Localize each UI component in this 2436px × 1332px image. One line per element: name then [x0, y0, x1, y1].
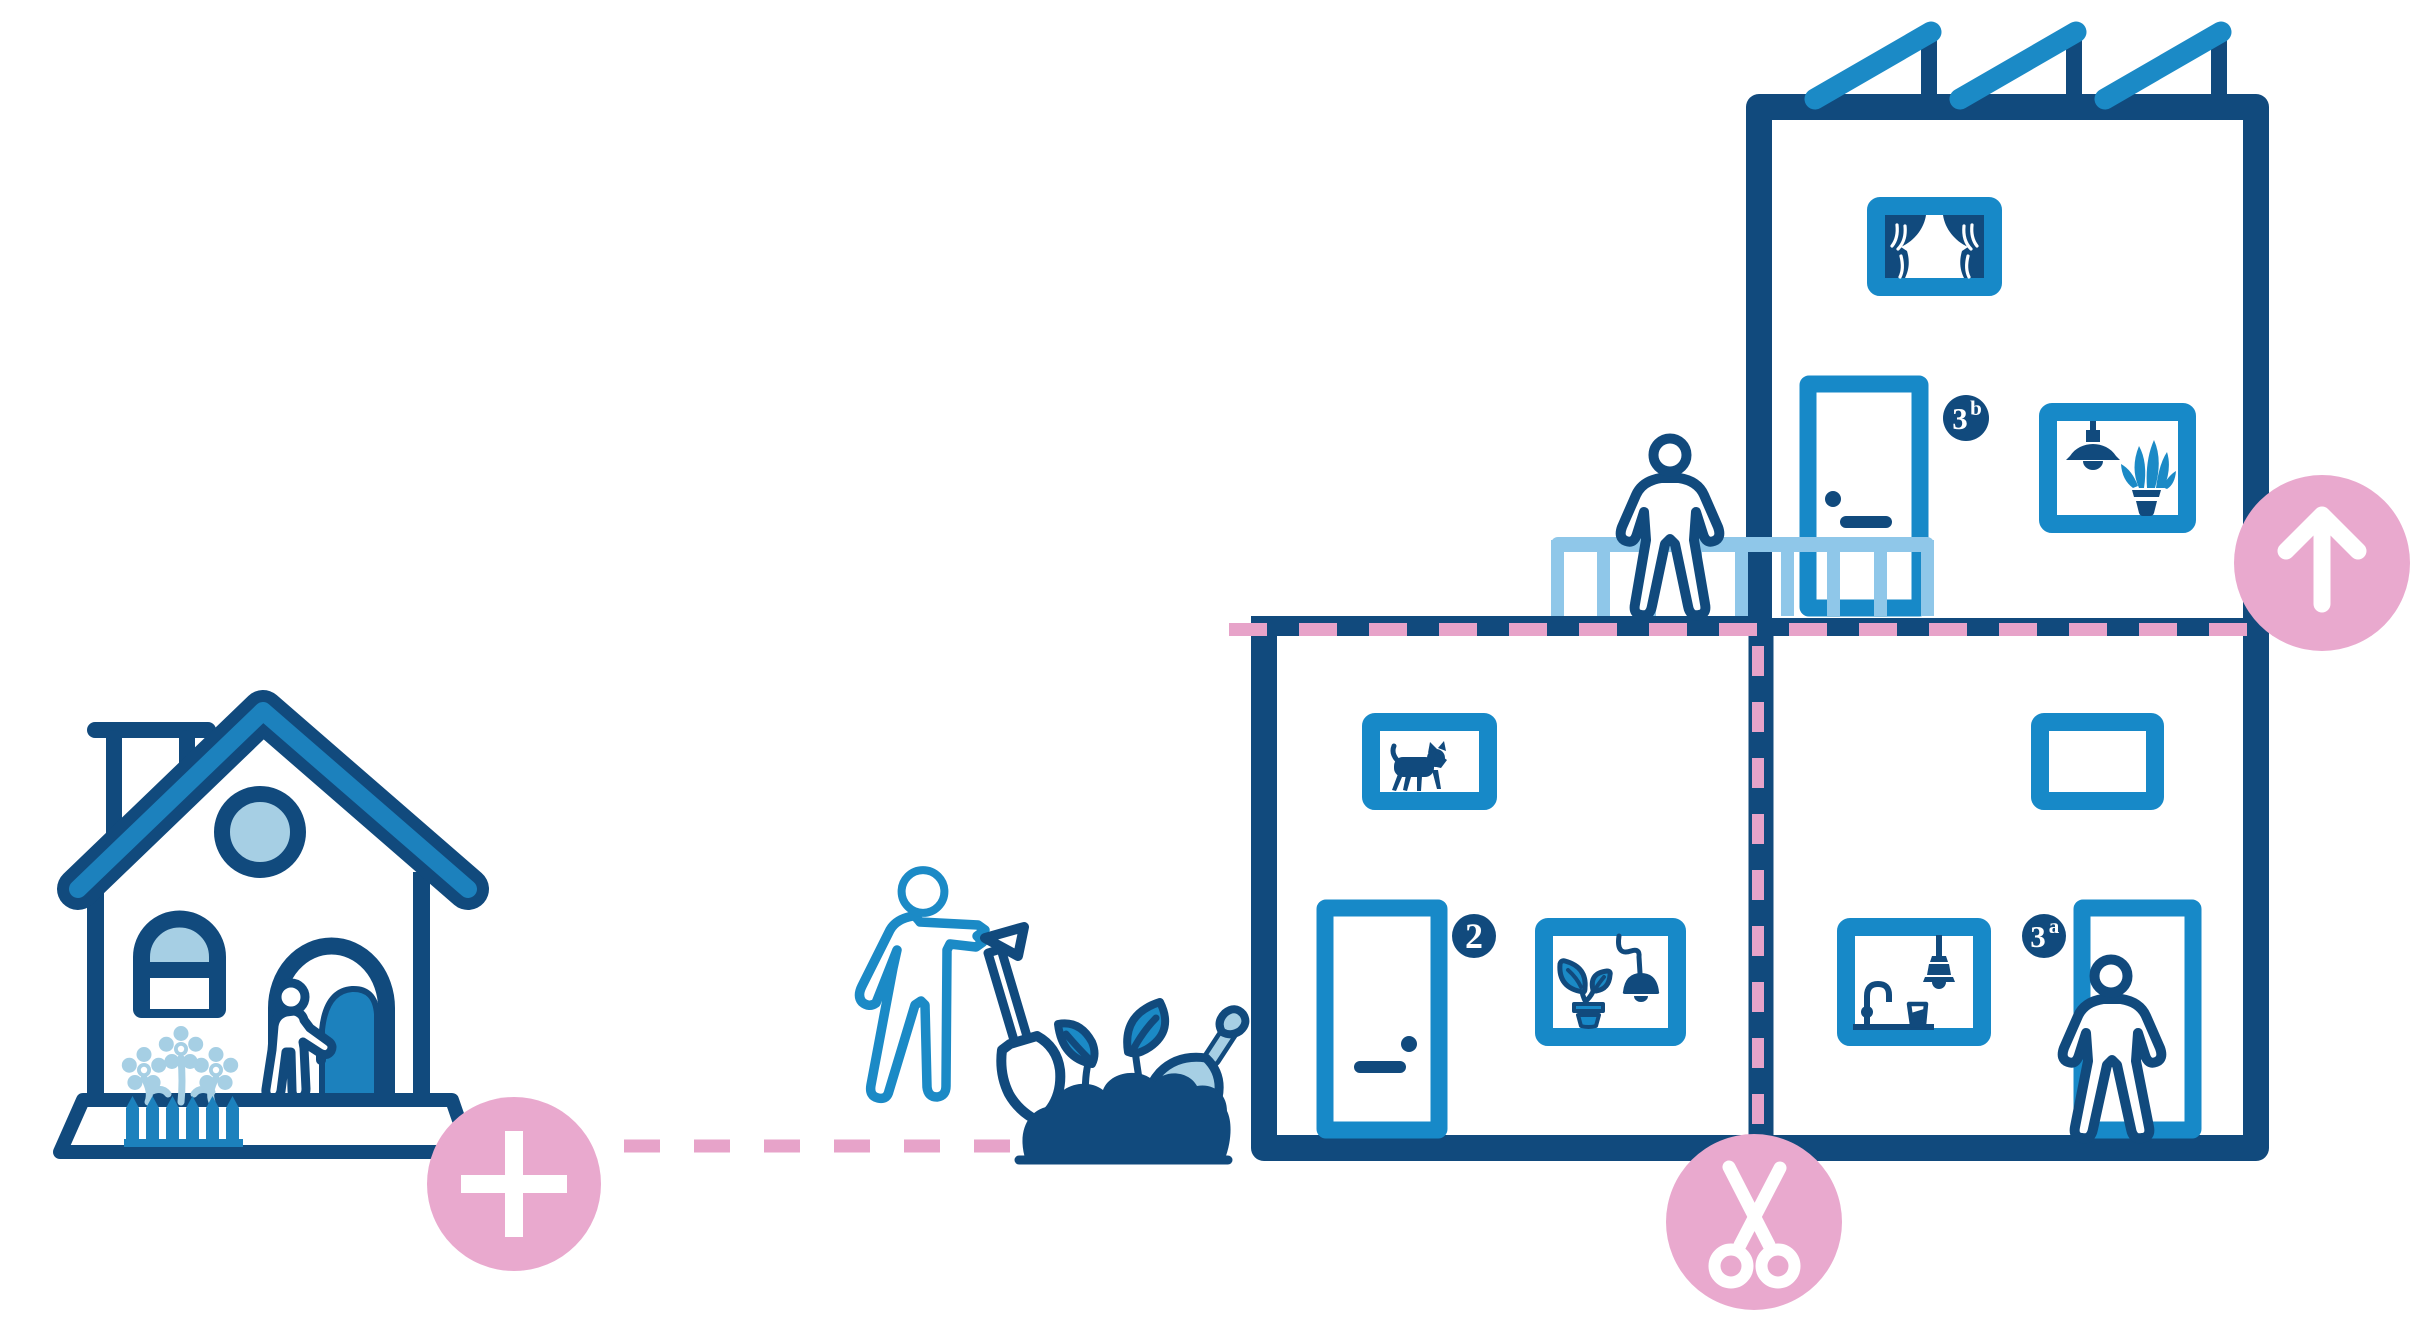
svg-text:3: 3 [2030, 919, 2046, 954]
svg-text:a: a [2049, 914, 2060, 938]
svg-text:2: 2 [1465, 916, 1483, 956]
svg-text:3: 3 [1952, 401, 1968, 436]
svg-text:b: b [1970, 396, 1982, 420]
